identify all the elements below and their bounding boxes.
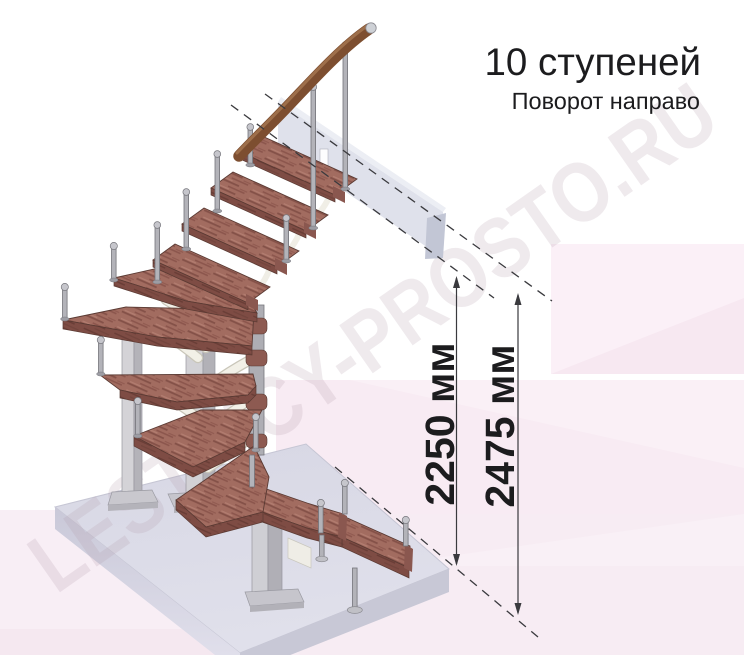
svg-text:2475 мм: 2475 мм — [477, 344, 523, 507]
svg-text:10 ступеней: 10 ступеней — [484, 41, 701, 84]
svg-text:2250 мм: 2250 мм — [417, 342, 463, 505]
svg-text:Поворот направо: Поворот направо — [512, 88, 700, 114]
